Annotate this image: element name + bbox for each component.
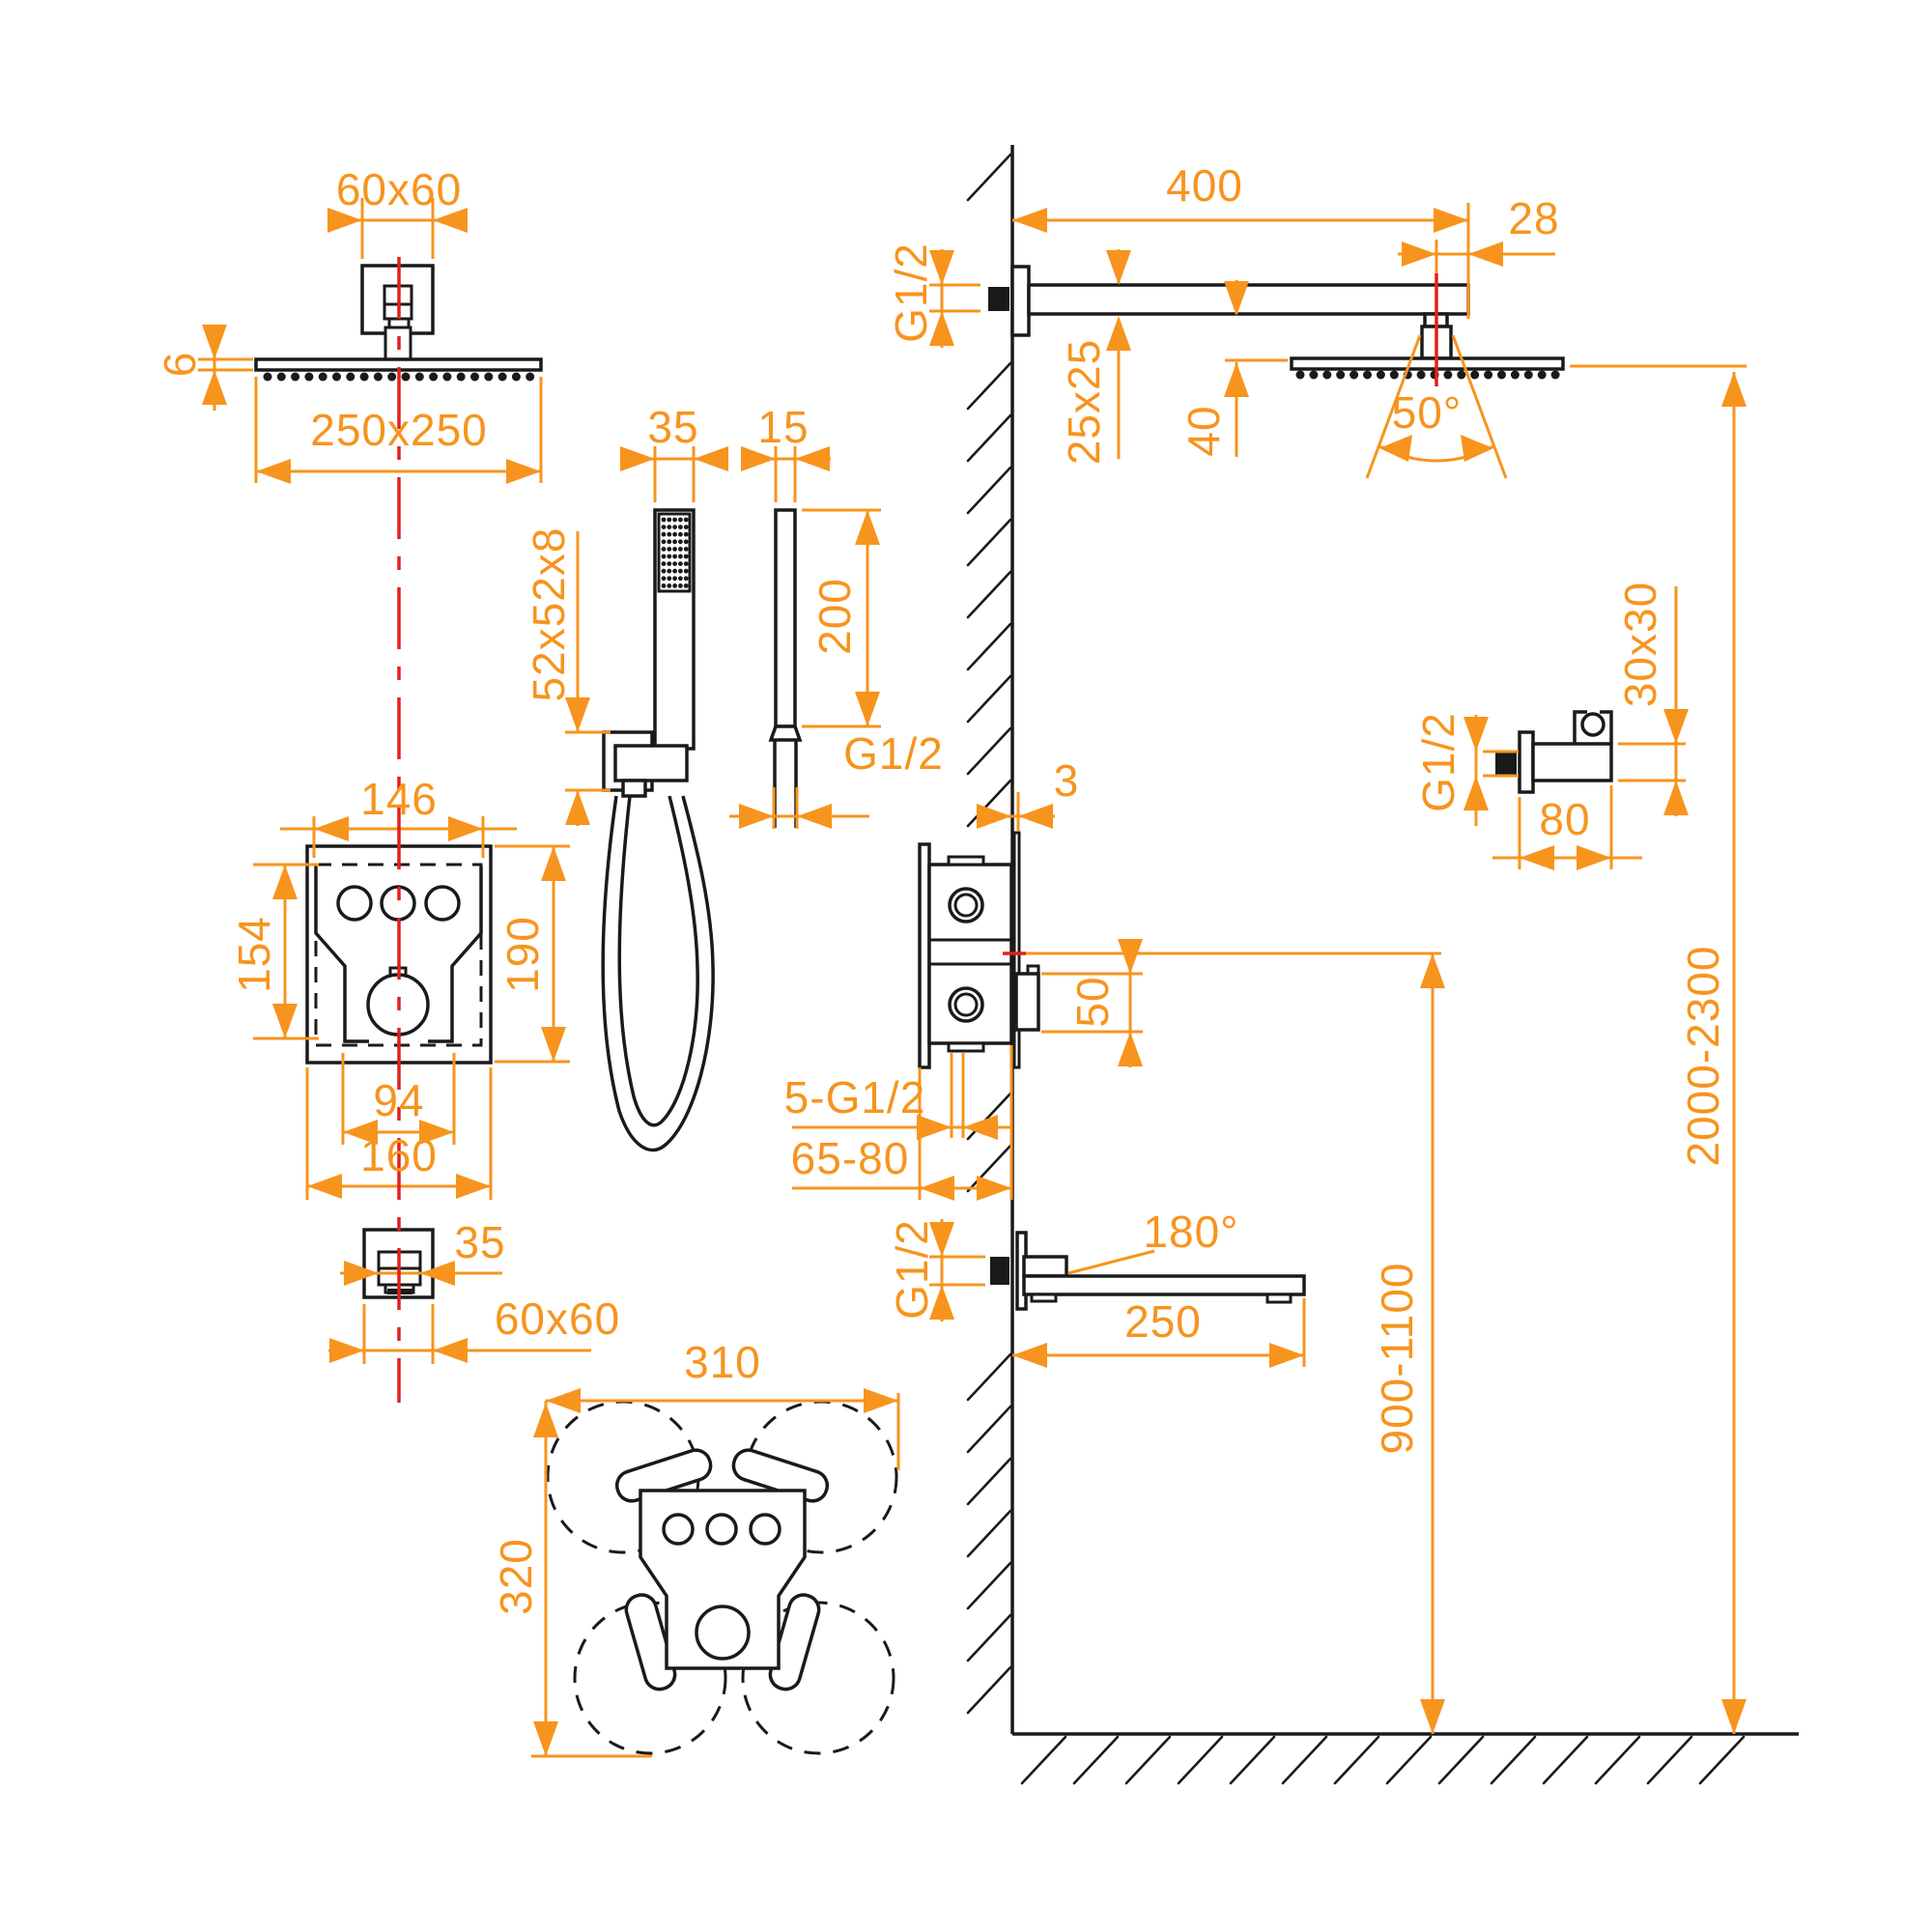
arrowhead xyxy=(1224,362,1249,397)
nozzle-dot xyxy=(470,373,479,382)
wall-hatch-stroke xyxy=(968,676,1010,722)
arrowhead xyxy=(1420,1699,1445,1734)
holder-thread-connector xyxy=(1495,752,1517,776)
arrowhead xyxy=(1420,953,1445,988)
spray-dot xyxy=(672,532,677,537)
spray-dot xyxy=(684,539,689,544)
spray-dot xyxy=(667,525,671,529)
nozzle-dot xyxy=(1322,371,1331,380)
arrowhead xyxy=(1463,717,1489,752)
spray-dot xyxy=(672,569,677,574)
arrowhead xyxy=(1577,845,1611,870)
nozzle-dot xyxy=(264,373,272,382)
floor-hatch-stroke xyxy=(1648,1737,1691,1783)
floor-hatch-stroke xyxy=(1439,1737,1483,1783)
spray-dot xyxy=(662,539,667,544)
shower-hose-inner xyxy=(619,796,697,1125)
wall-hatch-stroke xyxy=(968,520,1010,565)
floor-hatch-stroke xyxy=(1283,1737,1326,1783)
arrowhead xyxy=(1663,709,1689,744)
dim-label-holder-thread: G1/2 xyxy=(1413,712,1463,812)
hand-shower-wand xyxy=(655,510,694,749)
dim-label-trim-size: 60x60 xyxy=(495,1293,620,1344)
dim-label-panel-width-bottom-outer: 160 xyxy=(360,1130,438,1180)
dim-label-head-mount-height: 2000-2300 xyxy=(1678,946,1728,1167)
spray-dot xyxy=(662,554,667,559)
wall-hatch-stroke xyxy=(968,1667,1010,1713)
nozzle-dot xyxy=(1296,371,1305,380)
arrowhead xyxy=(272,1004,298,1038)
nozzle-dot xyxy=(484,373,493,382)
arrowhead xyxy=(202,325,227,359)
arrowhead xyxy=(329,1338,364,1363)
arrowhead xyxy=(920,1176,954,1201)
spray-dot xyxy=(662,532,667,537)
spout-base xyxy=(1024,1257,1066,1276)
dim-label-spout-length: 250 xyxy=(1124,1296,1202,1347)
nozzle-dot xyxy=(1350,371,1358,380)
arrowhead xyxy=(1468,241,1503,267)
hand-shower-side-view xyxy=(771,510,800,828)
leader-180deg xyxy=(1068,1251,1154,1273)
floor-hatch-stroke xyxy=(1179,1737,1222,1783)
spray-dot xyxy=(684,532,689,537)
floor-hatch-stroke xyxy=(1022,1737,1065,1783)
wand-side xyxy=(776,510,795,726)
valve-outlet-connector xyxy=(1016,974,1038,1030)
dim-label-swing-envelope-width: 310 xyxy=(684,1337,761,1387)
spray-dot xyxy=(667,576,671,581)
dim-label-trim-width-inner: 35 xyxy=(454,1217,505,1267)
spout-aerator xyxy=(1267,1294,1291,1302)
arrowhead xyxy=(433,1338,468,1363)
arrowhead xyxy=(456,1174,491,1199)
wall-hatch-stroke xyxy=(968,468,1010,513)
arrowhead xyxy=(864,1388,898,1413)
spray-dot xyxy=(667,583,671,588)
dim-label-arm-length: 400 xyxy=(1166,160,1243,211)
control-panel-plan-view xyxy=(548,1402,896,1753)
arrowhead xyxy=(541,846,566,881)
spray-dot xyxy=(672,576,677,581)
spray-dot xyxy=(672,547,677,552)
arrowhead xyxy=(533,1403,558,1437)
spray-dot xyxy=(667,554,671,559)
holder-escutcheon xyxy=(1520,732,1533,792)
spray-dot xyxy=(667,539,671,544)
arrowhead xyxy=(1402,241,1436,267)
wall-hatch-stroke xyxy=(968,1563,1010,1608)
nozzle-dot xyxy=(1470,371,1479,380)
arrowhead xyxy=(963,1115,998,1140)
hose-outlet xyxy=(623,781,645,796)
spray-dot xyxy=(678,569,683,574)
spray-dot xyxy=(662,547,667,552)
nozzle-dot xyxy=(319,373,327,382)
nozzle-dot xyxy=(1484,371,1492,380)
arrowhead xyxy=(448,816,483,841)
dim-label-head-swivel-angle: 50° xyxy=(1392,387,1463,438)
floor-hatch-stroke xyxy=(1231,1737,1274,1783)
dim-label-panel-height-right: 190 xyxy=(497,916,548,993)
arm-escutcheon xyxy=(1012,267,1029,335)
arrowhead xyxy=(977,1176,1011,1201)
spray-dot xyxy=(672,554,677,559)
dim-label-spout-swivel-angle: 180° xyxy=(1143,1207,1238,1257)
spray-dot xyxy=(672,583,677,588)
dim-label-hand-shower-width: 35 xyxy=(647,402,698,452)
nozzle-dot xyxy=(512,373,521,382)
nozzle-dot xyxy=(1551,371,1560,380)
spray-dot xyxy=(684,569,689,574)
dim-label-panel-width-top: 146 xyxy=(360,774,438,824)
mixer-valve-side-view xyxy=(920,833,1038,1067)
arrowhead xyxy=(1520,845,1554,870)
nozzle-dot xyxy=(429,373,438,382)
arrowhead xyxy=(1118,1032,1143,1066)
temperature-knob xyxy=(696,1606,749,1659)
nozzle-dot xyxy=(360,373,369,382)
nozzle-dot xyxy=(1497,371,1506,380)
arrowhead xyxy=(1106,316,1131,351)
arrowhead xyxy=(1012,1343,1047,1368)
hand-shower-front-view xyxy=(603,510,713,1151)
dim-label-swing-envelope-height: 320 xyxy=(491,1538,541,1615)
spray-dot xyxy=(667,547,671,552)
nozzle-dot xyxy=(387,373,396,382)
holder-hook-ring xyxy=(1582,714,1604,735)
wall-hatch-stroke xyxy=(968,624,1010,669)
dim-label-hand-shower-length: 200 xyxy=(810,578,860,655)
wall-hatch-stroke xyxy=(968,363,1010,409)
wall-hatch-stroke xyxy=(968,728,1010,774)
nozzle-dot xyxy=(457,373,466,382)
wall-hatch-stroke xyxy=(968,1615,1010,1661)
spray-dot xyxy=(662,576,667,581)
spray-dot xyxy=(672,539,677,544)
nozzle-dot xyxy=(1390,371,1399,380)
holder-body xyxy=(1533,744,1611,781)
hose-stub xyxy=(775,740,796,828)
floor-hatch-stroke xyxy=(1596,1737,1639,1783)
arrowhead xyxy=(797,804,832,829)
arrowhead xyxy=(202,370,227,405)
dim-label-head-size: 250x250 xyxy=(310,405,488,455)
dim-label-hand-shower-depth: 15 xyxy=(757,402,809,452)
spray-dot xyxy=(684,583,689,588)
shower-nozzles-side xyxy=(1296,371,1560,380)
spray-dot xyxy=(678,532,683,537)
arrowhead xyxy=(307,1174,342,1199)
dim-label-panel-width-bottom-inner: 94 xyxy=(373,1075,424,1125)
spray-dot xyxy=(672,525,677,529)
wall-hatch-stroke xyxy=(968,155,1010,200)
dim-label-head-mount-size: 60x60 xyxy=(336,164,462,214)
wall-hatch-stroke xyxy=(968,572,1010,617)
dim-label-wall-offset: 3 xyxy=(1054,755,1080,806)
diagram-canvas: 60x606250x250146154190941603560x60310320… xyxy=(0,0,1932,1932)
arrowhead xyxy=(1106,250,1131,285)
nozzle-dot xyxy=(1417,371,1426,380)
nozzle-dot xyxy=(1363,371,1372,380)
shower-head-plate-side xyxy=(1292,358,1563,369)
spray-dot xyxy=(662,525,667,529)
arrowhead xyxy=(1721,372,1747,407)
spray-dot xyxy=(667,518,671,523)
floor-hatch-stroke xyxy=(1335,1737,1378,1783)
arrowhead xyxy=(1269,1343,1304,1368)
spray-dot xyxy=(678,576,683,581)
valve-port-bottom xyxy=(949,1043,983,1051)
dim-label-panel-height-left: 154 xyxy=(229,916,279,993)
spray-dot xyxy=(662,583,667,588)
spray-dot xyxy=(684,576,689,581)
spray-dot xyxy=(678,583,683,588)
dim-label-arm-section: 25x25 xyxy=(1059,339,1109,465)
floor-hatch-stroke xyxy=(1492,1737,1535,1783)
shower-installation-diagram: 60x606250x250146154190941603560x60310320… xyxy=(0,0,1932,1932)
dim-label-head-drop: 40 xyxy=(1179,405,1229,456)
dim-320 xyxy=(531,1401,652,1756)
arrowhead xyxy=(1118,939,1143,974)
spray-dot xyxy=(678,547,683,552)
spray-dot xyxy=(678,525,683,529)
dim-label-holder-plate-size: 52x52x8 xyxy=(524,527,574,702)
nozzle-dot xyxy=(526,373,534,382)
wall-hatch-stroke xyxy=(968,1459,1010,1504)
nozzle-dot xyxy=(415,373,424,382)
arrowhead xyxy=(1012,208,1047,233)
nozzle-dot xyxy=(1377,371,1385,380)
nozzle-dot xyxy=(1524,371,1533,380)
arrowhead xyxy=(546,1388,581,1413)
dim-label-holder-length: 80 xyxy=(1539,794,1590,844)
nozzle-dot xyxy=(277,373,286,382)
holder-clip xyxy=(615,746,687,781)
nozzle-dot xyxy=(442,373,451,382)
arrowhead xyxy=(314,816,349,841)
spray-dot xyxy=(684,525,689,529)
nozzle-dot xyxy=(346,373,355,382)
wall-hatch-stroke xyxy=(968,415,1010,461)
valve-body xyxy=(929,865,1011,1043)
spout-body xyxy=(1024,1276,1304,1294)
arrowhead xyxy=(1463,776,1489,810)
arrowhead xyxy=(1663,781,1689,815)
nozzle-dot xyxy=(1309,371,1318,380)
nozzle-dot xyxy=(304,373,313,382)
spray-dot xyxy=(684,554,689,559)
floor-hatch-stroke xyxy=(1126,1737,1170,1783)
spray-dot xyxy=(662,518,667,523)
spray-dot xyxy=(662,561,667,566)
spray-dot xyxy=(672,518,677,523)
arrowhead xyxy=(506,459,541,484)
floor-hatch-stroke xyxy=(1074,1737,1118,1783)
arrowhead xyxy=(1018,804,1053,829)
dim-label-valve-depth-range: 65-80 xyxy=(791,1133,910,1183)
dim-label-spout-thread: G1/2 xyxy=(887,1219,937,1320)
spout-thread-connector xyxy=(990,1257,1009,1285)
arrowhead xyxy=(565,790,590,825)
nozzle-dot xyxy=(1336,371,1345,380)
dim-label-valve-ports: 5-G1/2 xyxy=(784,1072,926,1122)
floor-hatch-stroke xyxy=(1387,1737,1431,1783)
shower-arm xyxy=(1029,285,1468,314)
nozzle-dot xyxy=(1511,371,1520,380)
arrowhead xyxy=(739,804,774,829)
dim-label-head-offset: 28 xyxy=(1508,193,1559,243)
dim-label-head-thickness: 6 xyxy=(155,352,205,378)
arrowhead xyxy=(855,510,880,545)
spray-dot xyxy=(684,561,689,566)
arrowhead xyxy=(256,459,291,484)
arrowhead xyxy=(533,1721,558,1756)
dim-label-arm-thread: G1/2 xyxy=(886,242,936,343)
wall-hatch-stroke xyxy=(968,1354,1010,1400)
arrowhead xyxy=(541,1027,566,1062)
dim-label-hand-shower-thread: G1/2 xyxy=(843,728,944,779)
wall-hatch-stroke xyxy=(968,1406,1010,1452)
finished-wall-plane xyxy=(1014,833,1019,1067)
arrowhead xyxy=(977,804,1011,829)
spray-dot xyxy=(678,518,683,523)
arrowhead xyxy=(855,692,880,726)
spray-dot xyxy=(678,561,683,566)
nozzle-dot xyxy=(1538,371,1547,380)
arrowhead xyxy=(1434,208,1468,233)
spray-dot xyxy=(684,547,689,552)
spray-dot xyxy=(662,569,667,574)
arm-thread-connector xyxy=(988,287,1009,311)
floor-hatch-stroke xyxy=(1700,1737,1744,1783)
dim-label-valve-offset: 50 xyxy=(1067,976,1118,1027)
arrowhead xyxy=(1721,1699,1747,1734)
spray-dot xyxy=(667,532,671,537)
nozzle-dot xyxy=(374,373,383,382)
spray-dot xyxy=(667,569,671,574)
dim-label-spout-mount-height: 900-1100 xyxy=(1372,1263,1422,1455)
arrowhead xyxy=(272,865,298,899)
nozzle-dot xyxy=(402,373,411,382)
nozzle-dot xyxy=(498,373,507,382)
spray-dot xyxy=(684,518,689,523)
wall-hatch-stroke xyxy=(968,1511,1010,1556)
spray-dot xyxy=(672,561,677,566)
nozzle-dot xyxy=(1443,371,1452,380)
spray-dot xyxy=(678,539,683,544)
nozzle-dot xyxy=(1457,371,1465,380)
nozzle-dot xyxy=(291,373,299,382)
dim-label-holder-size: 30x30 xyxy=(1615,582,1665,707)
nozzle-dot xyxy=(332,373,341,382)
spray-dot xyxy=(667,561,671,566)
valve-port-top xyxy=(949,857,983,865)
spray-dot xyxy=(678,554,683,559)
floor-hatch-stroke xyxy=(1544,1737,1587,1783)
